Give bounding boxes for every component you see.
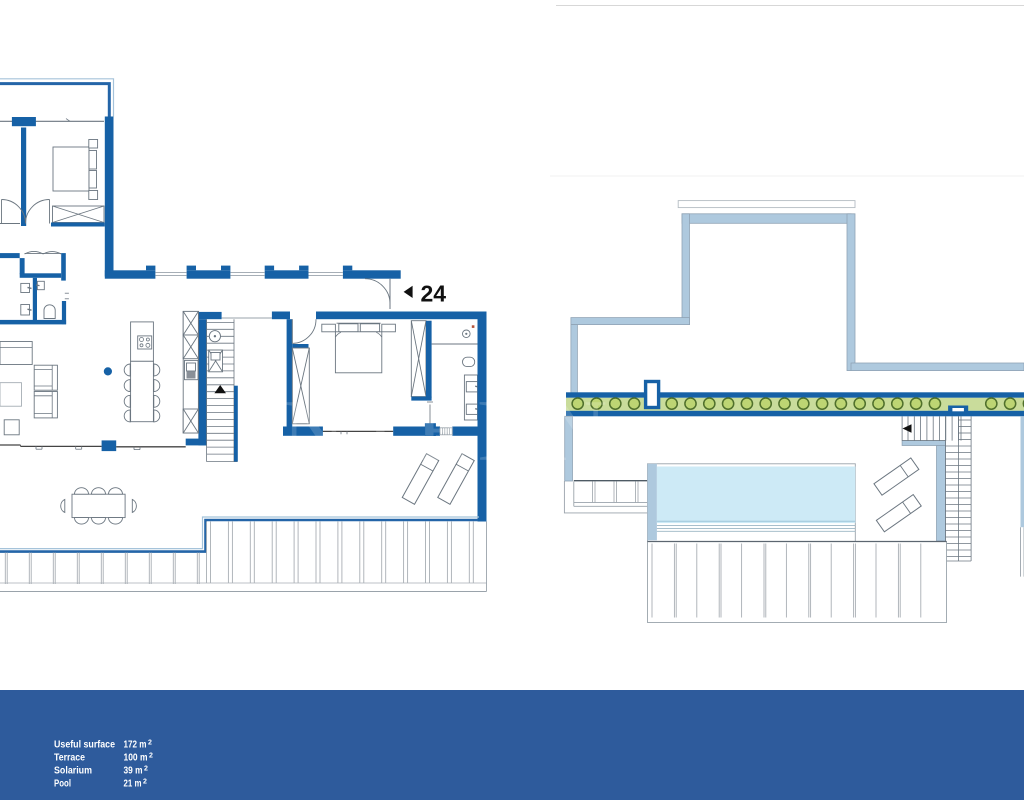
svg-text:39 m: 39 m — [124, 766, 143, 777]
svg-text:2: 2 — [149, 753, 153, 760]
svg-text:Solarium: Solarium — [54, 766, 92, 777]
svg-text:172 m: 172 m — [124, 740, 147, 751]
svg-text:Terrace: Terrace — [54, 753, 85, 764]
svg-text:Pool: Pool — [54, 779, 71, 790]
svg-text:24: 24 — [421, 281, 447, 307]
svg-text:2: 2 — [144, 766, 148, 773]
svg-text:2: 2 — [148, 740, 152, 747]
svg-text:2: 2 — [143, 779, 147, 786]
svg-text:NTERN: NTERN — [282, 383, 615, 480]
svg-text:Useful surface: Useful surface — [54, 740, 115, 751]
svg-text:100 m: 100 m — [124, 753, 148, 764]
svg-text:21 m: 21 m — [124, 779, 142, 790]
